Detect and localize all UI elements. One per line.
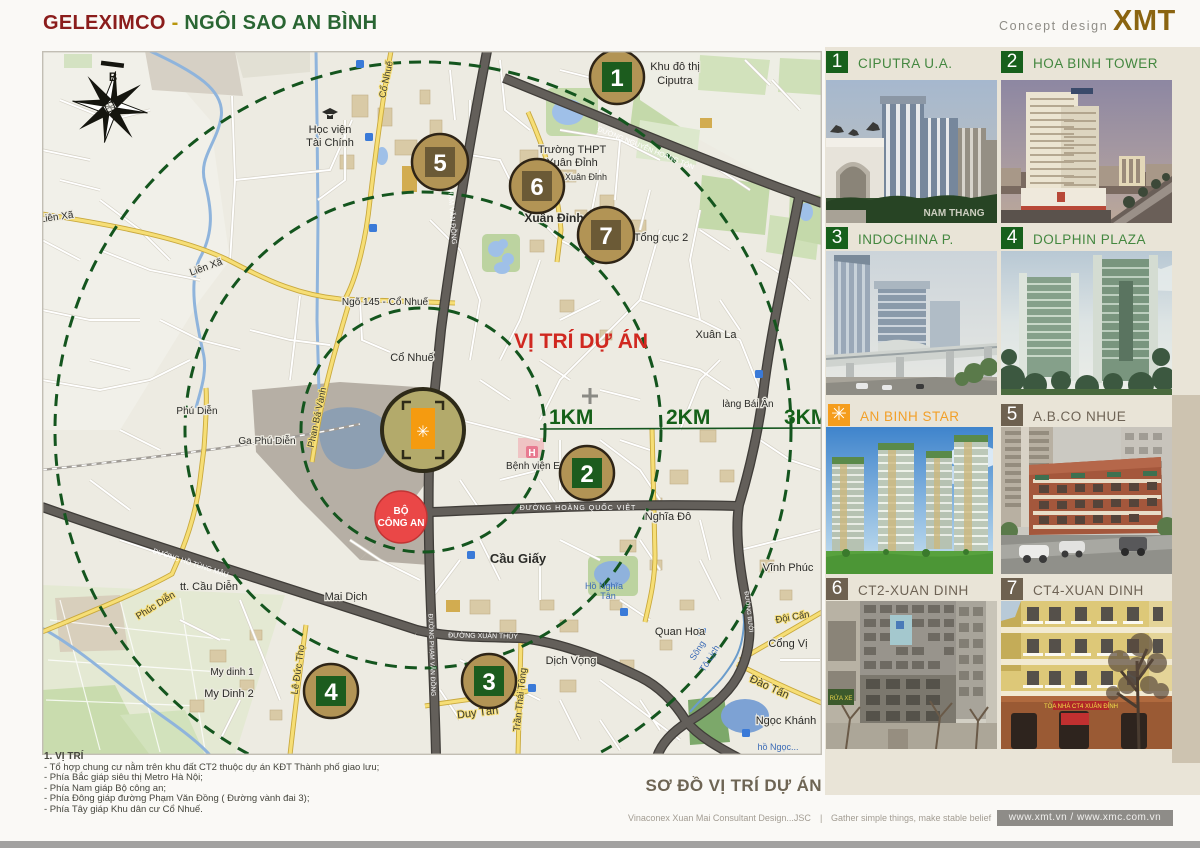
svg-text:CÔNG AN: CÔNG AN: [378, 516, 425, 529]
svg-text:làng Bái Ân: làng Bái Ân: [722, 397, 773, 410]
svg-text:Quan Hoa: Quan Hoa: [655, 626, 706, 638]
svg-text:3: 3: [482, 669, 495, 696]
svg-text:Trường THPT: Trường THPT: [538, 144, 607, 156]
svg-text:2KM: 2KM: [666, 406, 710, 429]
svg-text:1KM: 1KM: [549, 406, 593, 429]
svg-text:Tài Chính: Tài Chính: [306, 137, 354, 149]
svg-text:Khu đô thị: Khu đô thị: [650, 61, 700, 73]
svg-text:Tổng cục 2: Tổng cục 2: [634, 232, 688, 244]
svg-text:hồ Ngọc...: hồ Ngọc...: [757, 742, 798, 752]
svg-text:Vĩnh Phúc: Vĩnh Phúc: [763, 562, 814, 574]
svg-text:Nghĩa Đô: Nghĩa Đô: [645, 511, 691, 523]
svg-text:H: H: [528, 448, 535, 459]
svg-text:Phú Diễn: Phú Diễn: [176, 404, 217, 417]
svg-text:Cổ Nhuế: Cổ Nhuế: [390, 352, 433, 364]
svg-text:My Dinh 2: My Dinh 2: [204, 688, 254, 700]
svg-text:Ciputra: Ciputra: [657, 75, 693, 87]
svg-text:My dinh 1: My dinh 1: [210, 667, 254, 678]
svg-text:Cầu Giấy: Cầu Giấy: [490, 551, 547, 566]
svg-text:6: 6: [530, 174, 543, 201]
svg-text:Học viện: Học viện: [309, 124, 352, 136]
svg-text:1: 1: [610, 65, 623, 92]
svg-text:VỊ TRÍ DỰ ÁN: VỊ TRÍ DỰ ÁN: [514, 330, 648, 353]
svg-text:Tân: Tân: [600, 591, 616, 601]
svg-text:Dịch Vọng: Dịch Vọng: [546, 655, 597, 667]
svg-text:RỬA XE: RỬA XE: [830, 695, 853, 702]
svg-text:2: 2: [580, 461, 593, 488]
svg-text:3KM: 3KM: [784, 406, 822, 429]
svg-text:Hồ Nghĩa: Hồ Nghĩa: [585, 581, 623, 591]
svg-text:B: B: [109, 72, 117, 84]
svg-text:Xuân La: Xuân La: [696, 329, 738, 341]
svg-text:Ngõ 145 - Cổ Nhuế: Ngõ 145 - Cổ Nhuế: [342, 296, 429, 308]
svg-text:tt. Cầu Diễn: tt. Cầu Diễn: [180, 580, 238, 593]
svg-text:Mai Dịch: Mai Dịch: [325, 591, 368, 603]
svg-text:7: 7: [599, 223, 612, 250]
svg-text:Ngọc Khánh: Ngọc Khánh: [756, 715, 817, 727]
svg-text:5: 5: [433, 150, 446, 177]
svg-text:BỘ: BỘ: [394, 504, 409, 517]
svg-text:Xuân Đỉnh: Xuân Đỉnh: [565, 172, 607, 182]
svg-text:Bệnh viện E: Bệnh viện E: [506, 461, 560, 472]
svg-text:NAM THANG: NAM THANG: [923, 208, 984, 219]
svg-text:4: 4: [324, 679, 338, 706]
svg-text:Ga Phú Diễn: Ga Phú Diễn: [238, 434, 295, 447]
svg-text:TÒA NHÀ CT4 XUÂN ĐỈNH: TÒA NHÀ CT4 XUÂN ĐỈNH: [1044, 703, 1118, 710]
svg-text:Cổng Vị: Cổng Vị: [768, 638, 807, 650]
svg-text:✳: ✳: [416, 424, 429, 441]
